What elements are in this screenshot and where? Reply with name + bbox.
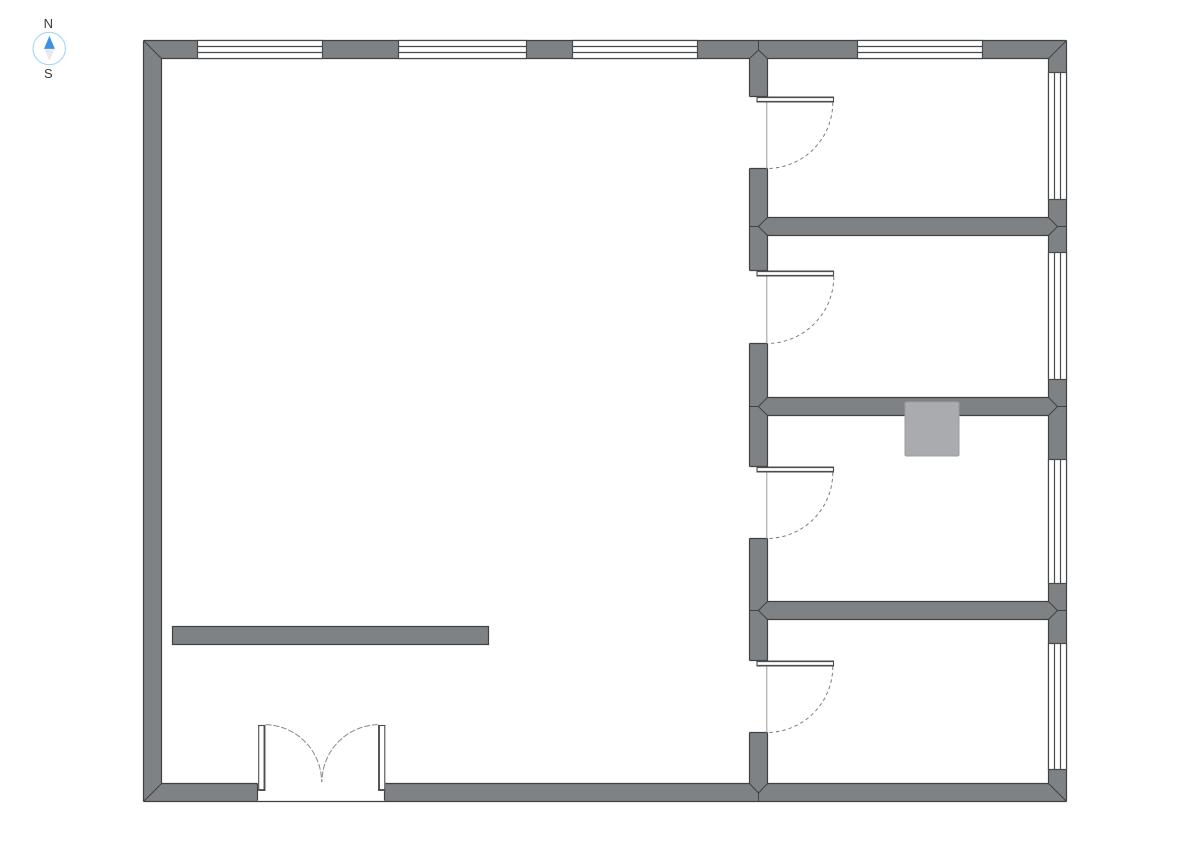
svg-text:N: N bbox=[44, 16, 53, 31]
svg-text:S: S bbox=[44, 66, 53, 81]
